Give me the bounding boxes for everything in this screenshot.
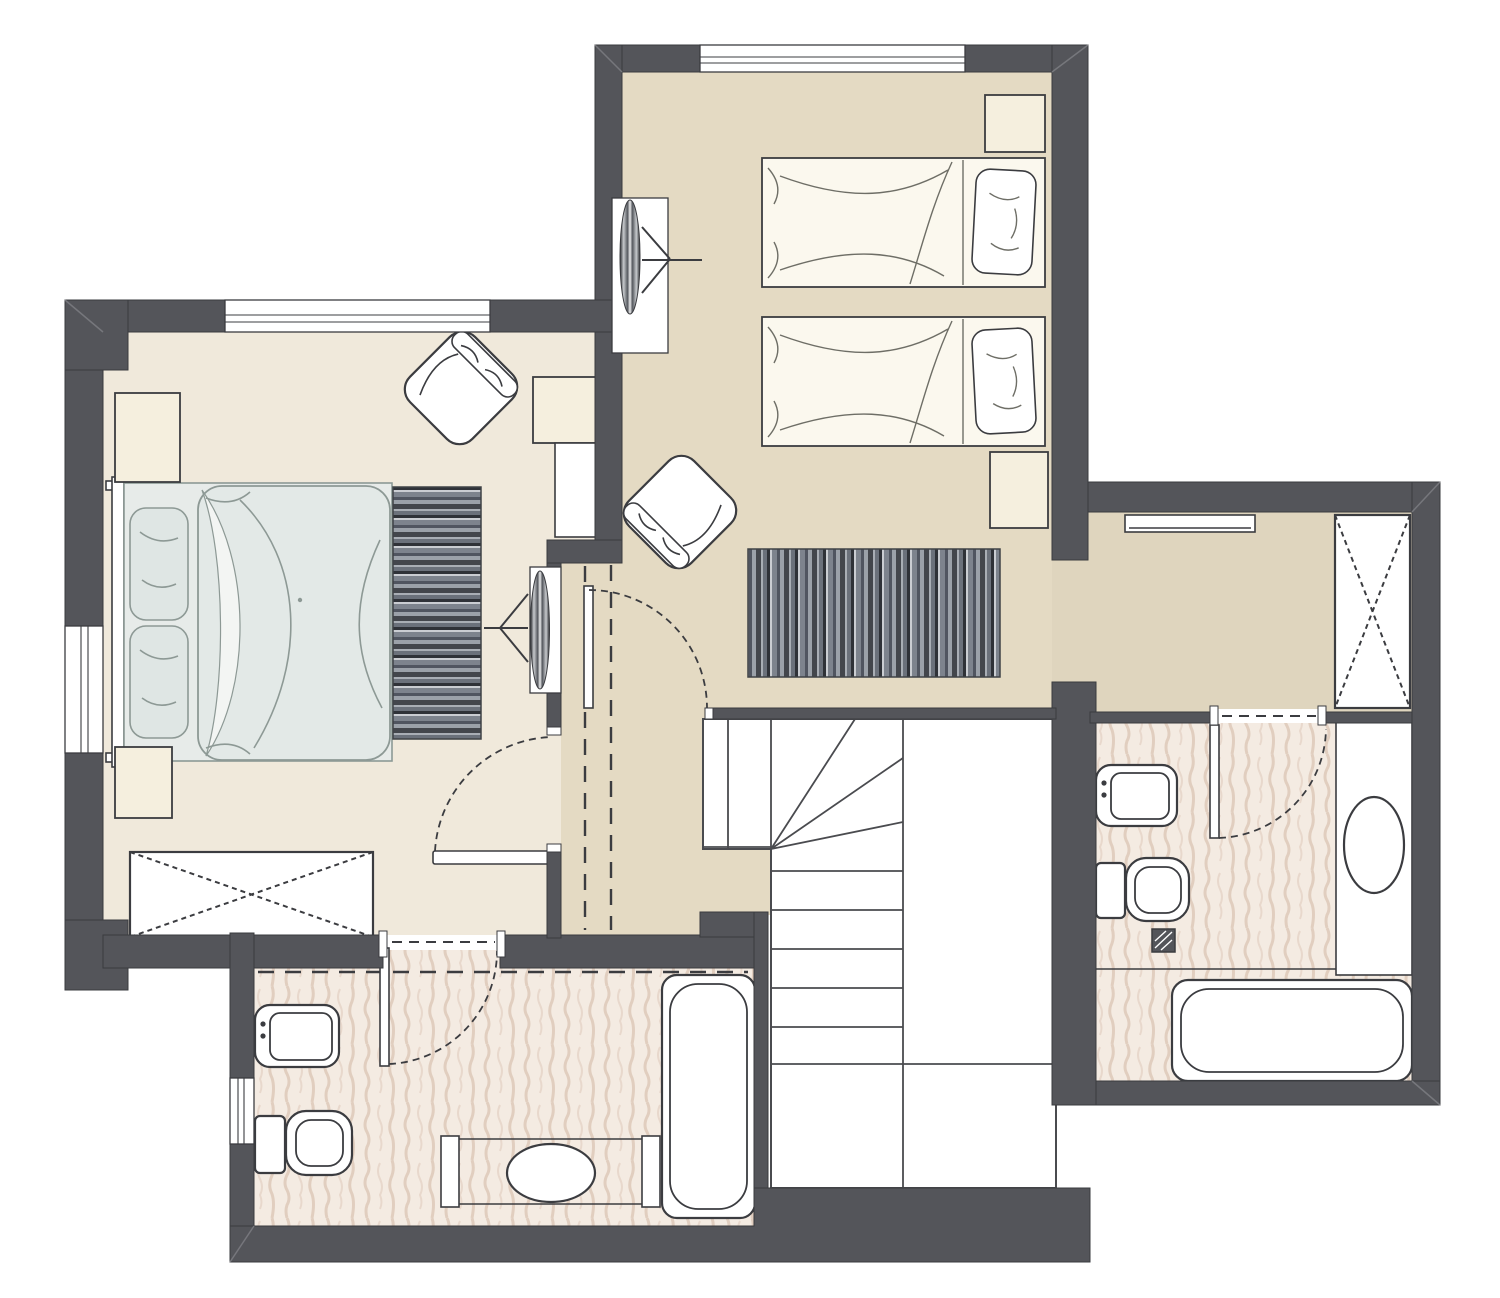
master-double-bed [106,477,392,767]
corridor-shelf [1125,515,1255,532]
wall-corridor-bottom-left [1090,712,1210,723]
door-jamb-cap [1318,706,1326,725]
door-leaf [433,851,554,864]
door-jamb-cap [1210,706,1218,725]
window-master-left [65,626,103,753]
wall-bathleft-west-upper [230,933,254,1078]
cistern [1096,863,1125,918]
bathtub [662,975,755,1218]
floor-plan-drawing [0,0,1500,1298]
wall-master-left-chunk-top [65,300,128,370]
nightstand [990,452,1048,528]
corridor-closet [1335,515,1410,708]
window-frame [700,45,965,72]
wall-master-top-right [490,300,622,332]
wall-corridor-bottom-right [1326,712,1412,723]
floor-plan-canvas [0,0,1500,1298]
washbasin [255,1005,339,1067]
counter-end-panel [441,1136,459,1207]
tap-dot [260,1021,265,1026]
stair-railing-wall [705,708,1056,719]
wall-master-right-stub [547,851,561,938]
tap-dot [1101,792,1106,797]
floor-hall-notch [703,847,771,915]
toilet [1096,858,1189,921]
nightstand [115,747,172,818]
door-jamb-cap [379,931,387,957]
pillow [971,328,1036,435]
toilet [255,1111,352,1175]
pillow-case [971,328,1036,435]
window-frame [225,300,490,332]
bathtub [1172,980,1412,1081]
single-bed-b [762,317,1045,446]
pillow [130,508,188,620]
wall-bathroom-right-bottom [1092,1081,1440,1105]
railing-end-cap [705,708,713,719]
shelf-body [1125,515,1255,532]
pillow [130,626,188,738]
wall-master-bottom-right [500,935,754,968]
nightstand [115,393,180,482]
single-bed-a [762,158,1045,287]
window-frame [230,1078,254,1144]
master-foot-bench [393,487,481,739]
tub-outer [662,975,755,1218]
dresser [555,443,597,537]
hall-bench [748,549,1000,677]
tub-outer [1172,980,1412,1081]
master-wardrobe [130,852,373,937]
tap-dot [260,1033,265,1038]
counter-end-panel [642,1136,660,1207]
window-bathroom-left [230,1078,254,1144]
nightstand [985,95,1045,152]
washbasin [1096,765,1177,826]
bench-upholstery [393,487,481,739]
floor-drain [1152,929,1175,952]
window-twin-top [700,45,965,72]
threshold [1218,709,1318,723]
duvet-button [298,598,302,602]
pillow [971,169,1036,276]
bench-upholstery [748,549,1000,677]
wall-stair-left-chunk [700,912,754,937]
door-jamb-cap [547,727,561,735]
wall-stair-left [754,912,768,1188]
wall-master-right-jog [547,540,622,563]
window-master-top [225,300,490,332]
wall-twin-right [1052,45,1088,560]
floor-passage [1052,560,1090,682]
door-leaf [1210,725,1219,838]
tap-dot [1101,780,1106,785]
side-table [533,377,597,443]
tv-screen-lens [620,200,640,314]
door-jamb-cap [497,931,505,957]
oval-basin [1344,797,1404,893]
wall-master-right-upper [595,332,622,540]
vanity-counter [1336,714,1412,975]
door-jamb-cap [547,844,561,852]
headboard [112,477,124,767]
cistern [255,1116,285,1173]
wall-middle-column [1052,682,1096,1105]
door-leaf [584,586,593,708]
window-frame [65,626,103,753]
pillow-case [971,169,1036,276]
oval-basin [507,1144,595,1202]
wall-corridor-top [1088,482,1440,512]
wall-right-outer [1412,482,1440,1105]
tv-screen-lens [531,571,550,689]
